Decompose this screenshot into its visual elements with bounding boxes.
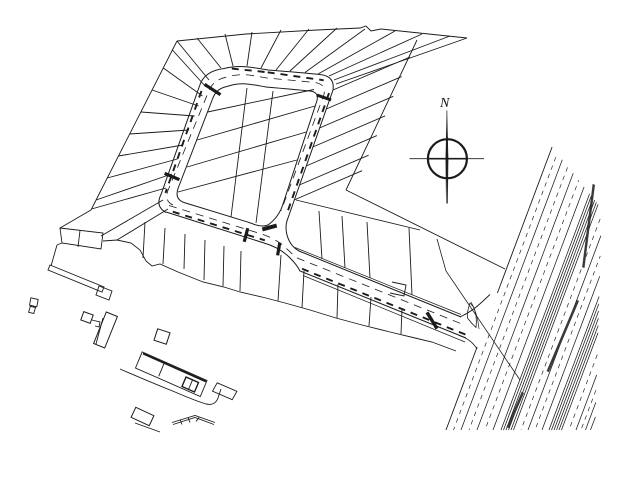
svg-text:N: N — [439, 96, 450, 111]
